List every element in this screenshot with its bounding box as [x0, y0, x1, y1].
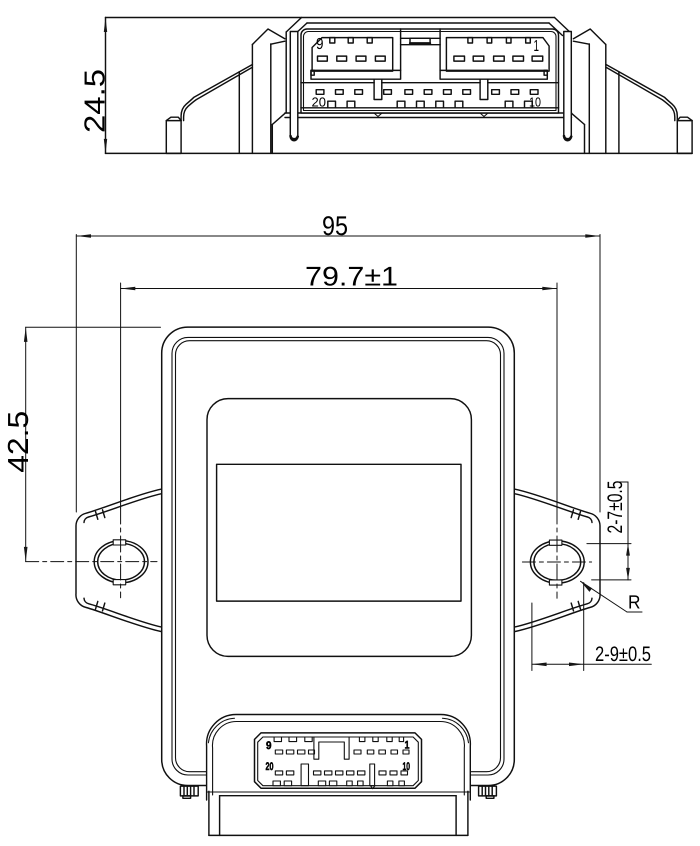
svg-text:24.5: 24.5 [80, 69, 112, 133]
svg-text:10: 10 [529, 95, 541, 110]
svg-text:9: 9 [266, 740, 272, 752]
svg-text:20: 20 [266, 761, 274, 773]
svg-text:2-7±0.5: 2-7±0.5 [604, 481, 627, 534]
svg-text:10: 10 [403, 761, 411, 773]
svg-text:1: 1 [534, 38, 540, 55]
svg-text:1: 1 [405, 740, 410, 752]
svg-text:42.5: 42.5 [3, 411, 35, 473]
svg-text:R: R [628, 593, 641, 614]
svg-text:20: 20 [312, 95, 327, 110]
svg-text:79.7±1: 79.7±1 [305, 262, 398, 292]
svg-text:9: 9 [316, 36, 324, 53]
svg-text:2-9±0.5: 2-9±0.5 [595, 643, 651, 666]
svg-text:95: 95 [322, 211, 348, 241]
